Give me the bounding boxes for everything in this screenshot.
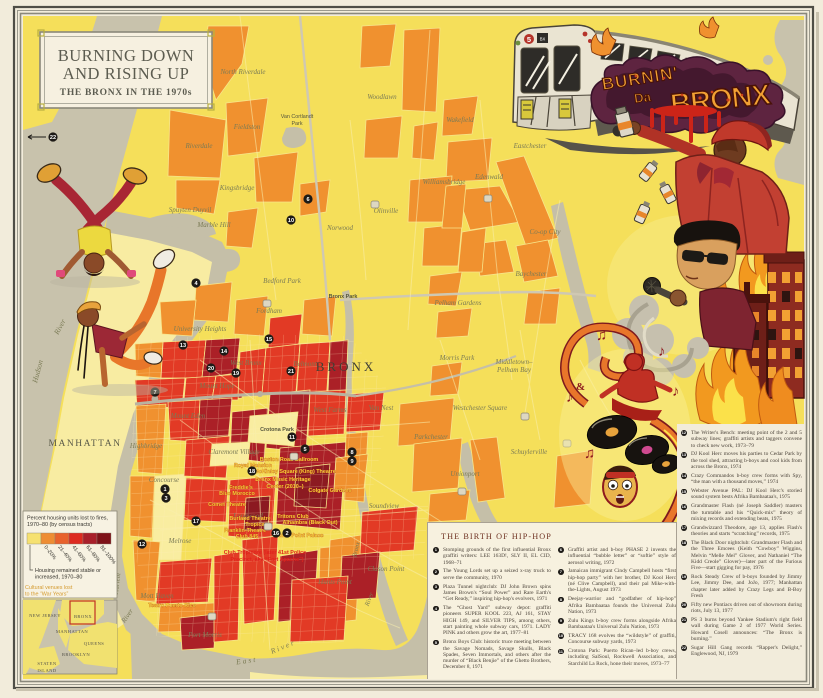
svg-text:Baychester: Baychester [515, 270, 546, 278]
svg-text:3: 3 [164, 496, 167, 502]
svg-text:Concourse: Concourse [149, 476, 179, 484]
svg-text:8: 8 [350, 450, 353, 456]
svg-text:Spuyten Duyvil: Spuyten Duyvil [169, 206, 212, 214]
svg-text:18: 18 [249, 469, 255, 475]
svg-text:Morris Park: Morris Park [439, 354, 476, 362]
svg-text:Park: Park [291, 121, 302, 127]
svg-text:Housing remained stable or: Housing remained stable or [35, 568, 101, 574]
svg-text:Parkchester: Parkchester [413, 433, 448, 441]
svg-text:♫: ♫ [584, 446, 595, 462]
svg-text:THE BRONX IN THE 1970s: THE BRONX IN THE 1970s [60, 88, 192, 98]
svg-text:Mount Eden: Mount Eden [170, 412, 206, 420]
svg-text:West Farms: West Farms [314, 406, 347, 414]
svg-text:STATEN: STATEN [37, 661, 56, 666]
svg-text:9: 9 [350, 459, 353, 465]
svg-text:Pelham Bay: Pelham Bay [496, 366, 532, 374]
svg-text:Center (2010–): Center (2010–) [266, 484, 303, 490]
svg-text:Co-op City: Co-op City [530, 228, 562, 236]
svg-text:5: 5 [303, 447, 306, 453]
svg-text:Bronx Park: Bronx Park [329, 294, 358, 300]
svg-text:Percent housing units lost to: Percent housing units lost to fires, [27, 516, 108, 522]
svg-text:10: 10 [288, 218, 294, 224]
svg-text:Marble Hill: Marble Hill [196, 221, 230, 229]
svg-text:NEW JERSEY: NEW JERSEY [29, 613, 61, 618]
svg-text:Fieldston: Fieldston [233, 123, 261, 131]
svg-text:University Heights: University Heights [174, 325, 227, 333]
svg-text:19: 19 [233, 371, 239, 377]
svg-text:BROOKLYN: BROOKLYN [62, 652, 91, 657]
svg-text:Da: Da [633, 89, 652, 106]
svg-text:22: 22 [50, 135, 56, 141]
svg-text:QUEENS: QUEENS [84, 641, 105, 646]
svg-text:Unionport: Unionport [450, 470, 480, 478]
svg-text:Wakefield: Wakefield [446, 116, 474, 124]
svg-text:Claremont Village: Claremont Village [208, 448, 259, 456]
svg-text:Middletown–: Middletown– [495, 358, 533, 366]
svg-text:Blue Morocco: Blue Morocco [219, 491, 255, 497]
svg-text:14: 14 [221, 349, 228, 355]
svg-text:Port Morris: Port Morris [187, 631, 222, 639]
svg-text:♪: ♪ [566, 390, 574, 406]
svg-text:♫: ♫ [596, 328, 607, 344]
svg-text:Comet Theatre: Comet Theatre [208, 502, 246, 508]
svg-text:Schuylerville: Schuylerville [511, 448, 548, 456]
svg-text:BX: BX [540, 37, 546, 42]
svg-text:increased, 1970–80: increased, 1970–80 [35, 575, 82, 581]
svg-text:Club Tropicore (later 41st Pol: Club Tropicore (later 41st Police [224, 550, 306, 556]
svg-text:Teatro Puerto Rico: Teatro Puerto Rico [148, 603, 197, 609]
svg-text:Bedford Park: Bedford Park [263, 277, 302, 285]
svg-text:to the “War Years”: to the “War Years” [25, 592, 68, 598]
svg-text:Cultural venues lost: Cultural venues lost [25, 585, 73, 591]
svg-text:Bronx Music Heritage: Bronx Music Heritage [255, 477, 310, 483]
svg-text:Pelham Gardens: Pelham Gardens [434, 299, 482, 307]
svg-text:ISLAND: ISLAND [37, 668, 57, 673]
svg-text:Crotona Park: Crotona Park [260, 427, 294, 433]
svg-text:21: 21 [288, 369, 294, 375]
svg-text:1970–80 (by census tracts): 1970–80 (by census tracts) [27, 522, 92, 528]
svg-text:Mott Haven: Mott Haven [139, 592, 174, 600]
svg-text:MANHATTAN: MANHATTAN [49, 439, 122, 449]
svg-text:Fordham: Fordham [255, 307, 282, 315]
svg-text:AND RISING UP: AND RISING UP [63, 64, 190, 83]
svg-text:Mount Hope: Mount Hope [198, 382, 234, 390]
svg-text:Westchester Square: Westchester Square [453, 404, 508, 412]
svg-text:BRONX: BRONX [316, 359, 377, 374]
svg-text:West Bronx: West Bronx [230, 359, 262, 367]
svg-text:Alhambra (Black Out): Alhambra (Black Out) [282, 520, 337, 526]
svg-text:12: 12 [139, 542, 145, 548]
svg-text:Hunts Point Palace: Hunts Point Palace [275, 533, 324, 539]
svg-text:&: & [576, 381, 585, 393]
svg-text:Norwood: Norwood [326, 224, 354, 232]
svg-text:Kingsbridge: Kingsbridge [219, 184, 255, 192]
svg-text:16: 16 [273, 531, 279, 537]
svg-text:2: 2 [285, 531, 288, 537]
svg-text:Club 845: Club 845 [236, 534, 258, 540]
svg-text:5: 5 [527, 35, 531, 44]
svg-text:McKinley Square (King) Theatre: McKinley Square (King) Theatre [254, 469, 335, 475]
svg-text:Melrose: Melrose [168, 537, 192, 545]
svg-text:20: 20 [208, 366, 214, 372]
svg-text:North Riverdale: North Riverdale [219, 68, 265, 76]
svg-text:Precinct, aka “Fort Apache”): Precinct, aka “Fort Apache”) [230, 557, 303, 563]
svg-text:♪: ♪ [672, 384, 680, 400]
svg-text:Riverdale: Riverdale [185, 142, 213, 150]
svg-text:Woodlawn: Woodlawn [367, 93, 397, 101]
svg-text:17: 17 [193, 519, 199, 525]
svg-text:Van Cortlandt: Van Cortlandt [281, 114, 314, 120]
svg-text:Belmont: Belmont [293, 360, 317, 368]
svg-text:Van Nest: Van Nest [369, 404, 395, 412]
svg-text:15: 15 [266, 337, 272, 343]
svg-text:Clason Point: Clason Point [368, 565, 406, 573]
svg-text:13: 13 [180, 343, 186, 349]
svg-text:BRONX: BRONX [74, 614, 92, 619]
svg-text:6: 6 [306, 197, 309, 203]
svg-text:Eastchester: Eastchester [513, 142, 547, 150]
svg-text:Soundview: Soundview [369, 502, 400, 510]
svg-text:1: 1 [163, 487, 166, 493]
svg-text:Colgate Gardens: Colgate Gardens [308, 488, 351, 494]
svg-text:Highbridge: Highbridge [129, 442, 162, 450]
svg-text:♪: ♪ [658, 344, 666, 360]
svg-text:Edenwald: Edenwald [474, 173, 503, 181]
svg-text:MANHATTAN: MANHATTAN [56, 629, 89, 634]
svg-text:11: 11 [289, 435, 295, 441]
svg-text:Hunts Point: Hunts Point [317, 578, 353, 586]
svg-text:Williamsbridge: Williamsbridge [423, 178, 466, 186]
svg-text:BURNING DOWN: BURNING DOWN [58, 46, 195, 65]
